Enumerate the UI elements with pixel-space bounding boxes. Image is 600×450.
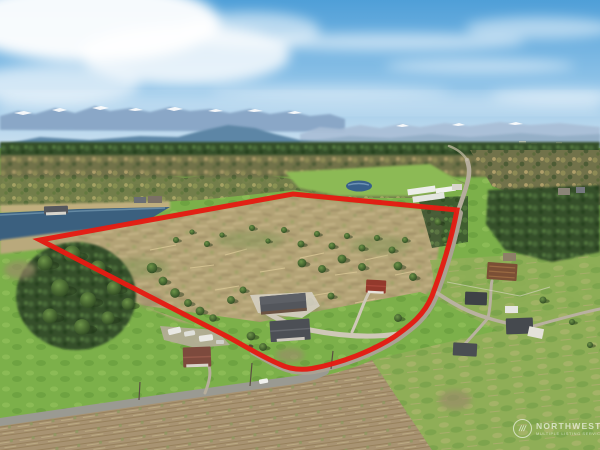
house-roof bbox=[148, 196, 162, 203]
cloud-wisp bbox=[255, 33, 525, 51]
neighbor-house bbox=[465, 292, 487, 306]
parked-car bbox=[216, 340, 224, 344]
aerial-photo-scene bbox=[0, 0, 600, 450]
neighbor-house-3 bbox=[453, 342, 478, 356]
farm-house bbox=[452, 184, 462, 190]
outbuilding bbox=[576, 187, 585, 193]
cloud-wisp bbox=[385, 59, 575, 73]
farmhouse-ridge bbox=[183, 357, 211, 358]
outbuilding bbox=[558, 188, 570, 195]
west-farmhouse bbox=[183, 347, 212, 368]
white-trailer bbox=[505, 306, 518, 313]
small-shed bbox=[503, 253, 516, 261]
aerial-photo: /// NORTHWEST MULTIPLE LISTING SERVICE bbox=[0, 0, 600, 450]
house-roof bbox=[134, 197, 146, 203]
rusty-barn bbox=[486, 262, 517, 281]
red-roof-shed bbox=[366, 279, 387, 293]
small-pond bbox=[346, 181, 372, 192]
main-house bbox=[269, 318, 310, 342]
